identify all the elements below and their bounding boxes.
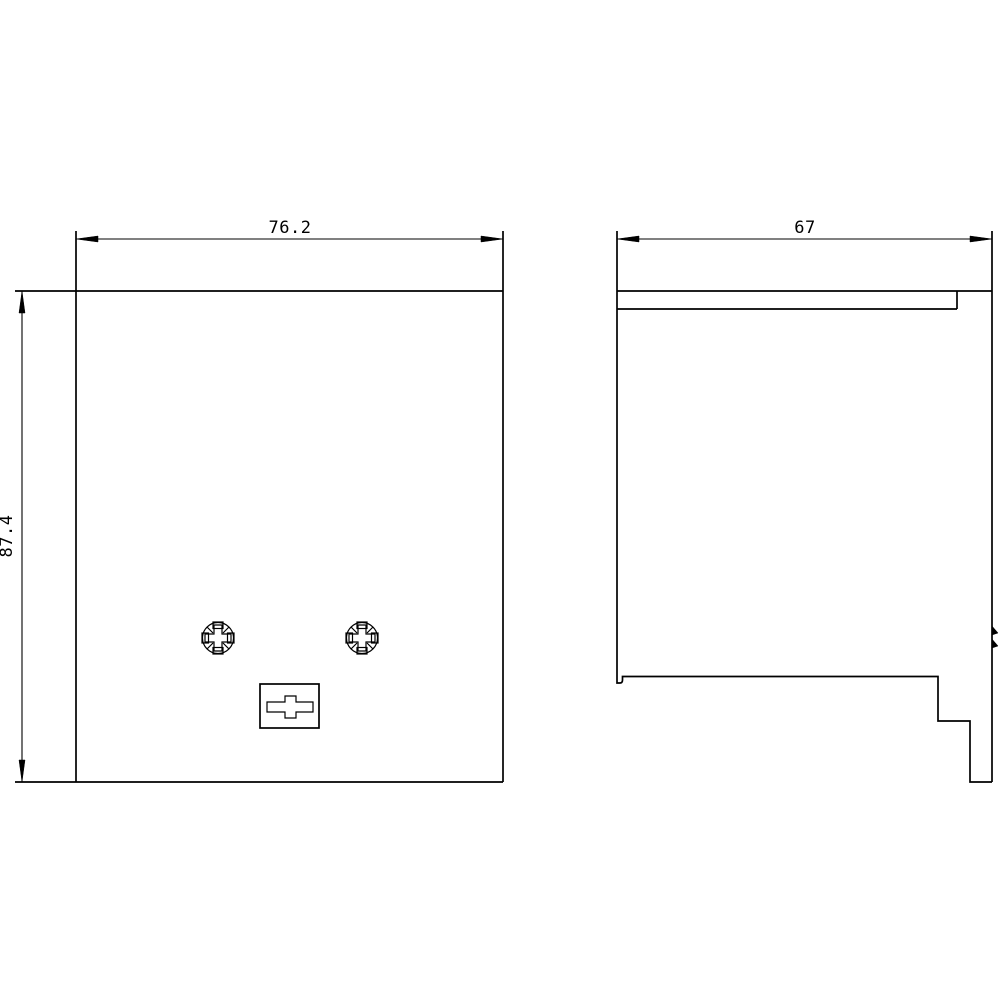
dim-arrow-right <box>481 236 503 242</box>
technical-drawing-page: 76.2 87.4 67 <box>0 0 1000 1000</box>
cross-slot-icon <box>260 684 319 728</box>
dimension-side-depth: 67 <box>617 218 992 242</box>
dimension-label-front-height: 87.4 <box>0 515 17 558</box>
dim-arrow-down <box>19 760 25 782</box>
dimension-drawing-canvas: 76.2 87.4 67 <box>0 0 1000 1000</box>
dim-arrow-left <box>76 236 98 242</box>
dimension-label-side-depth: 67 <box>794 218 815 238</box>
side-view <box>617 231 998 782</box>
top-groove <box>617 291 957 309</box>
dimension-label-front-width: 76.2 <box>269 218 312 238</box>
side-left-and-bottom-profile <box>617 231 992 782</box>
dim-arrow-left <box>617 236 639 242</box>
pozidriv-screw-icon <box>202 622 234 654</box>
dim-arrow-right <box>970 236 992 242</box>
dimension-front-height: 87.4 <box>0 291 25 782</box>
dim-arrow-up <box>19 291 25 313</box>
clip-hooks <box>992 626 998 648</box>
pozidriv-screw-icon <box>346 622 378 654</box>
dimension-front-width: 76.2 <box>76 218 503 242</box>
front-view <box>15 231 503 782</box>
